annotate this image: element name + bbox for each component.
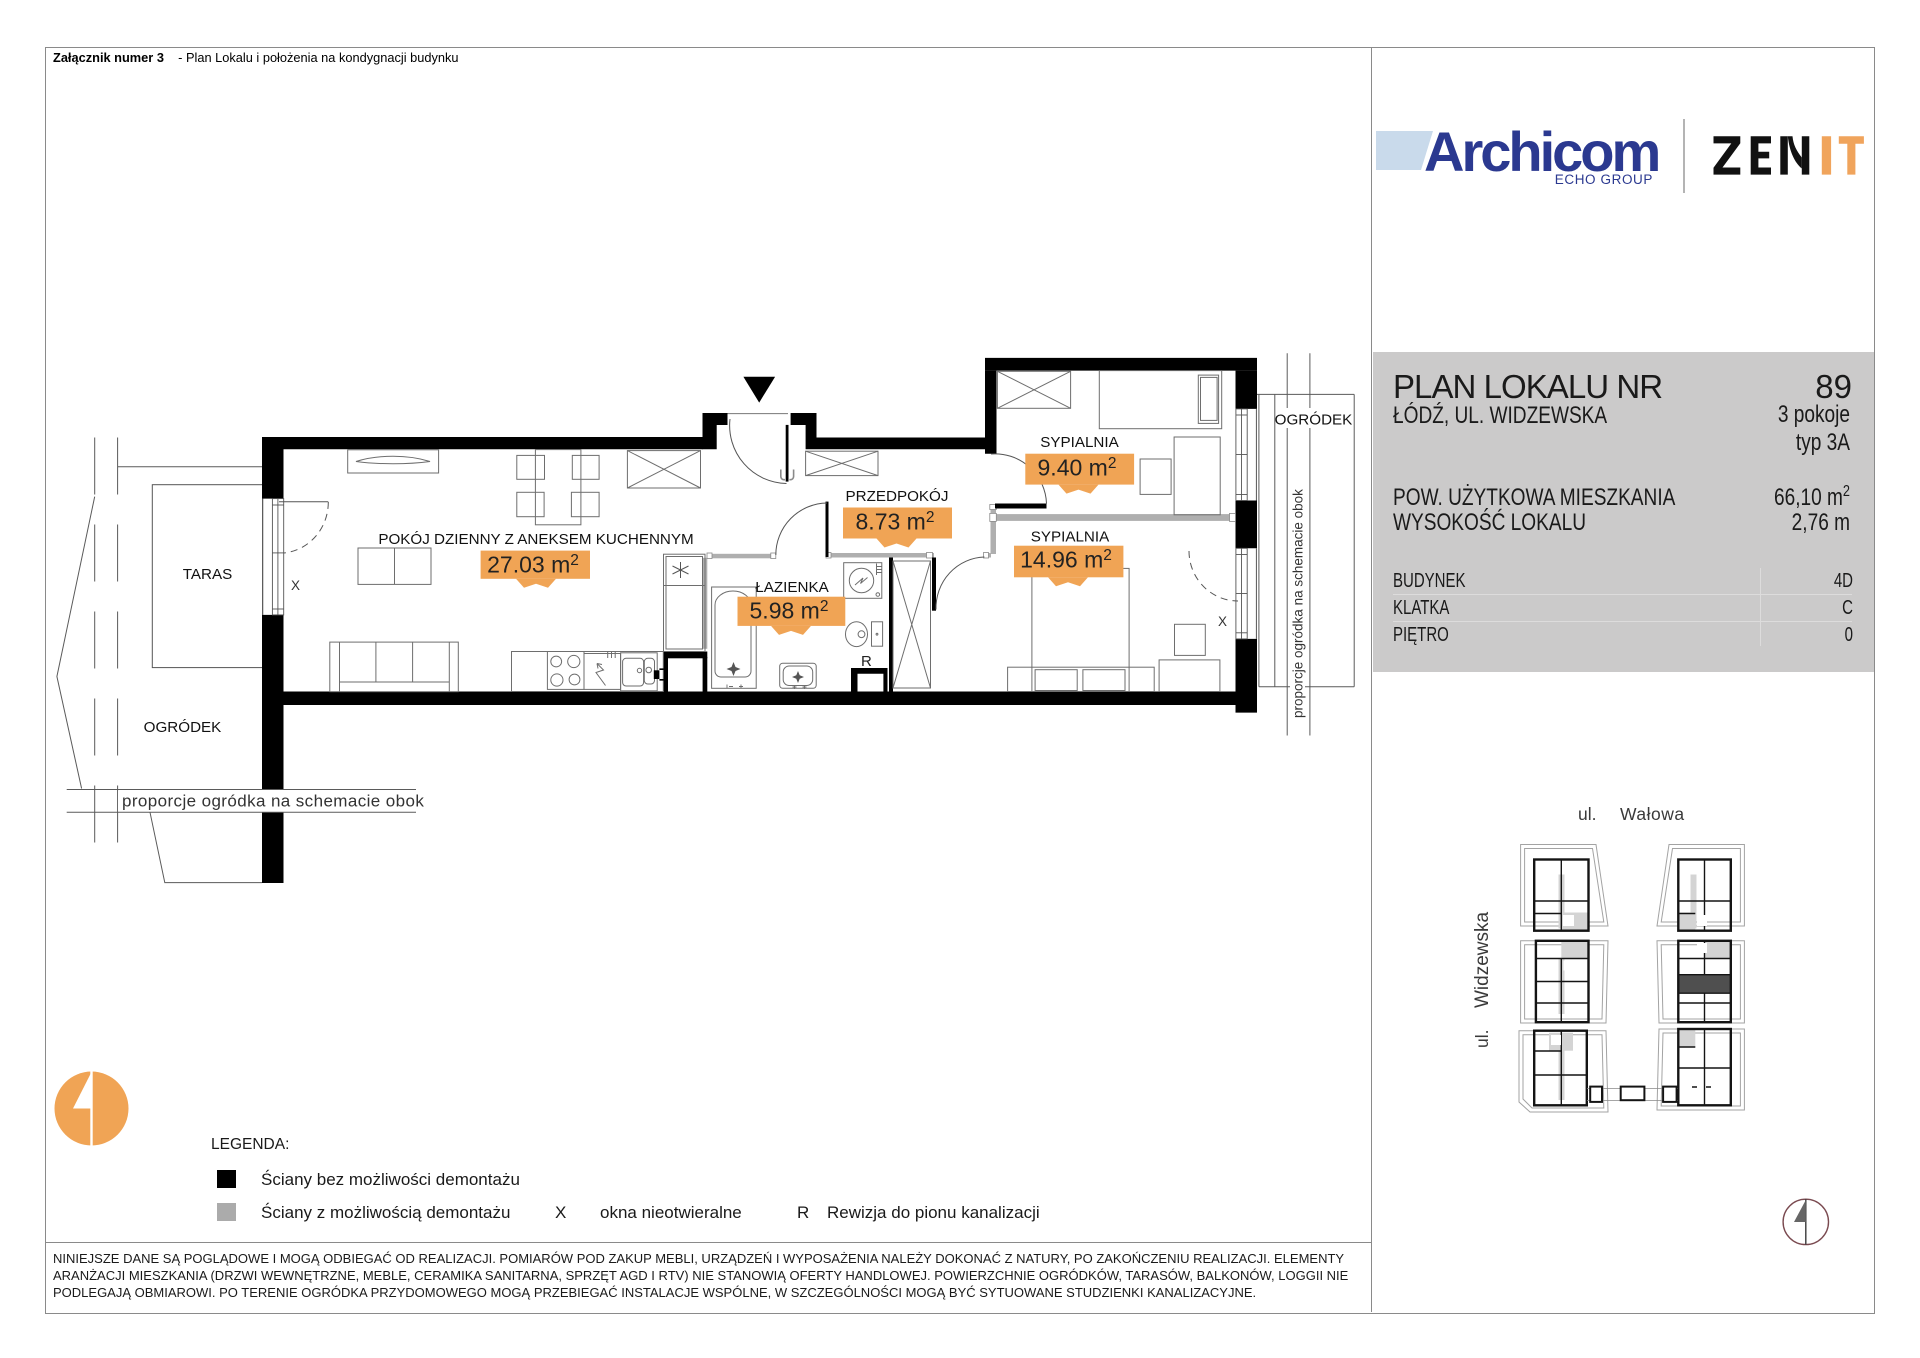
svg-text:8.73 m2: 8.73 m2 [856,508,935,534]
svg-text:OGRÓDEK: OGRÓDEK [144,719,222,736]
svg-text:PRZEDPOKÓJ: PRZEDPOKÓJ [846,488,949,505]
svg-text:ŁAZIENKA: ŁAZIENKA [755,579,829,596]
svg-text:SYPIALNIA: SYPIALNIA [1031,529,1110,546]
svg-text:ECHO GROUP: ECHO GROUP [1555,172,1653,187]
svg-text:POKÓJ DZIENNY Z ANEKSEM KUCHEN: POKÓJ DZIENNY Z ANEKSEM KUCHENNYM [378,531,693,548]
svg-text:5.98 m2: 5.98 m2 [750,598,829,624]
svg-text:SYPIALNIA: SYPIALNIA [1040,434,1119,451]
svg-text:X: X [1218,614,1227,629]
svg-text:9.40 m2: 9.40 m2 [1038,455,1117,481]
svg-text:R: R [861,653,872,670]
svg-text:proporcje ogródka na schemacie: proporcje ogródka na schemacie obok [1291,489,1306,718]
svg-text:ul.: ul. [1472,1030,1492,1048]
svg-text:Wałowa: Wałowa [1620,804,1685,824]
svg-text:X: X [291,578,300,593]
svg-text:14.96 m2: 14.96 m2 [1020,547,1112,573]
svg-text:27.03 m2: 27.03 m2 [487,551,579,577]
svg-text:Widzewska: Widzewska [1472,911,1493,1008]
svg-text:ul.: ul. [1578,804,1596,824]
svg-text:TARAS: TARAS [183,566,233,583]
svg-text:OGRÓDEK: OGRÓDEK [1275,412,1353,429]
svg-text:proporcje ogródka na schemacie: proporcje ogródka na schemacie obok [122,792,424,811]
